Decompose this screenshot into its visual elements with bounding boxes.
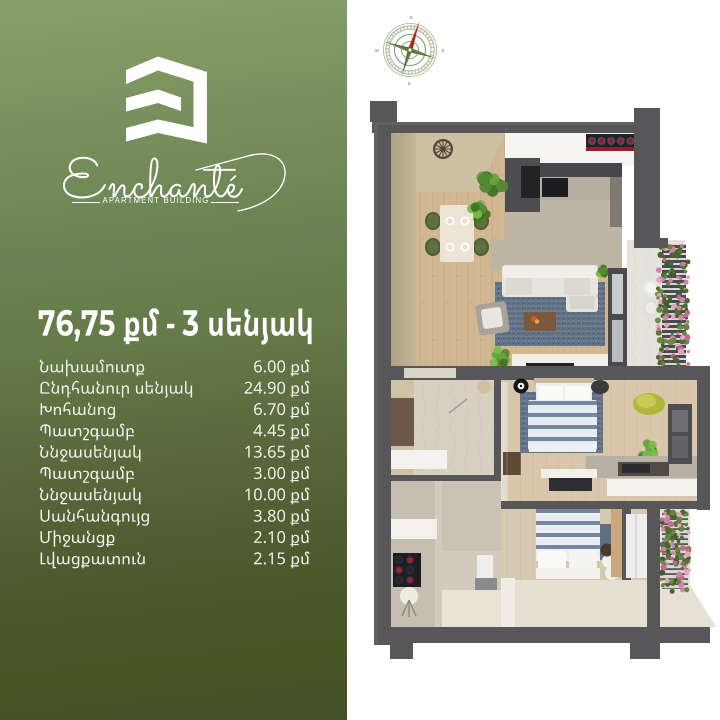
svg-text:E: E [442,48,445,53]
svg-text:N: N [409,15,412,20]
svg-text:W: W [375,48,379,53]
svg-text:S: S [408,81,411,86]
